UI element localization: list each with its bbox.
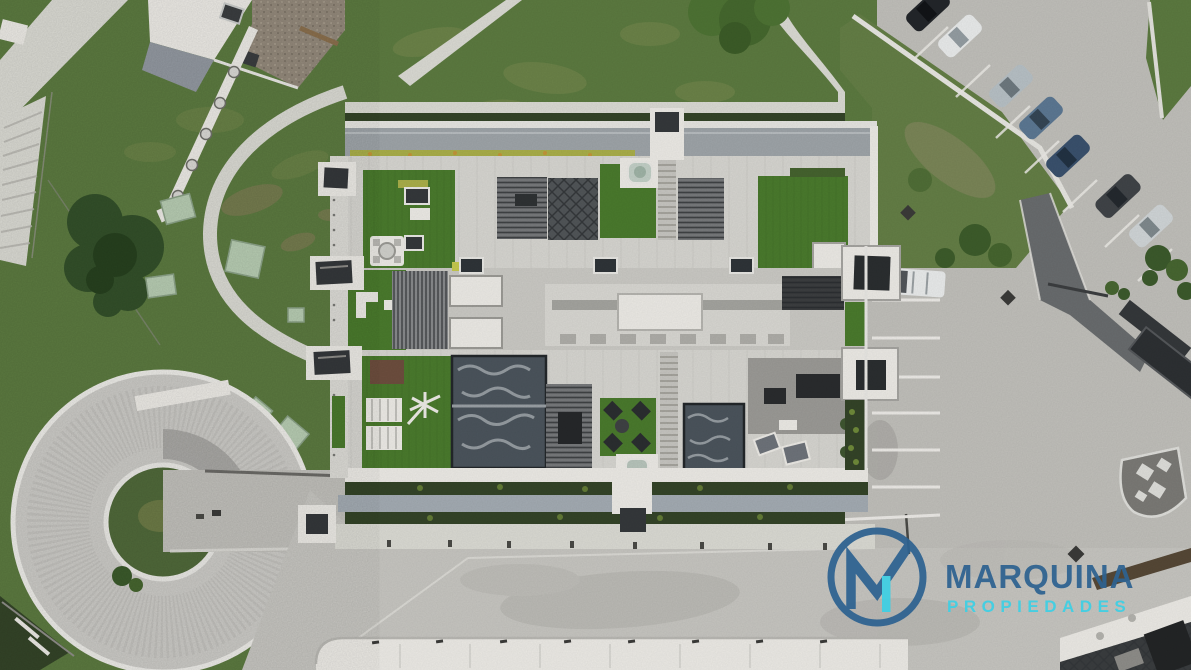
aerial-photo-canvas [0, 0, 1191, 670]
aerial-photo: MARQUINA PROPIEDADES [0, 0, 1191, 670]
photo-grain-left [0, 0, 345, 670]
